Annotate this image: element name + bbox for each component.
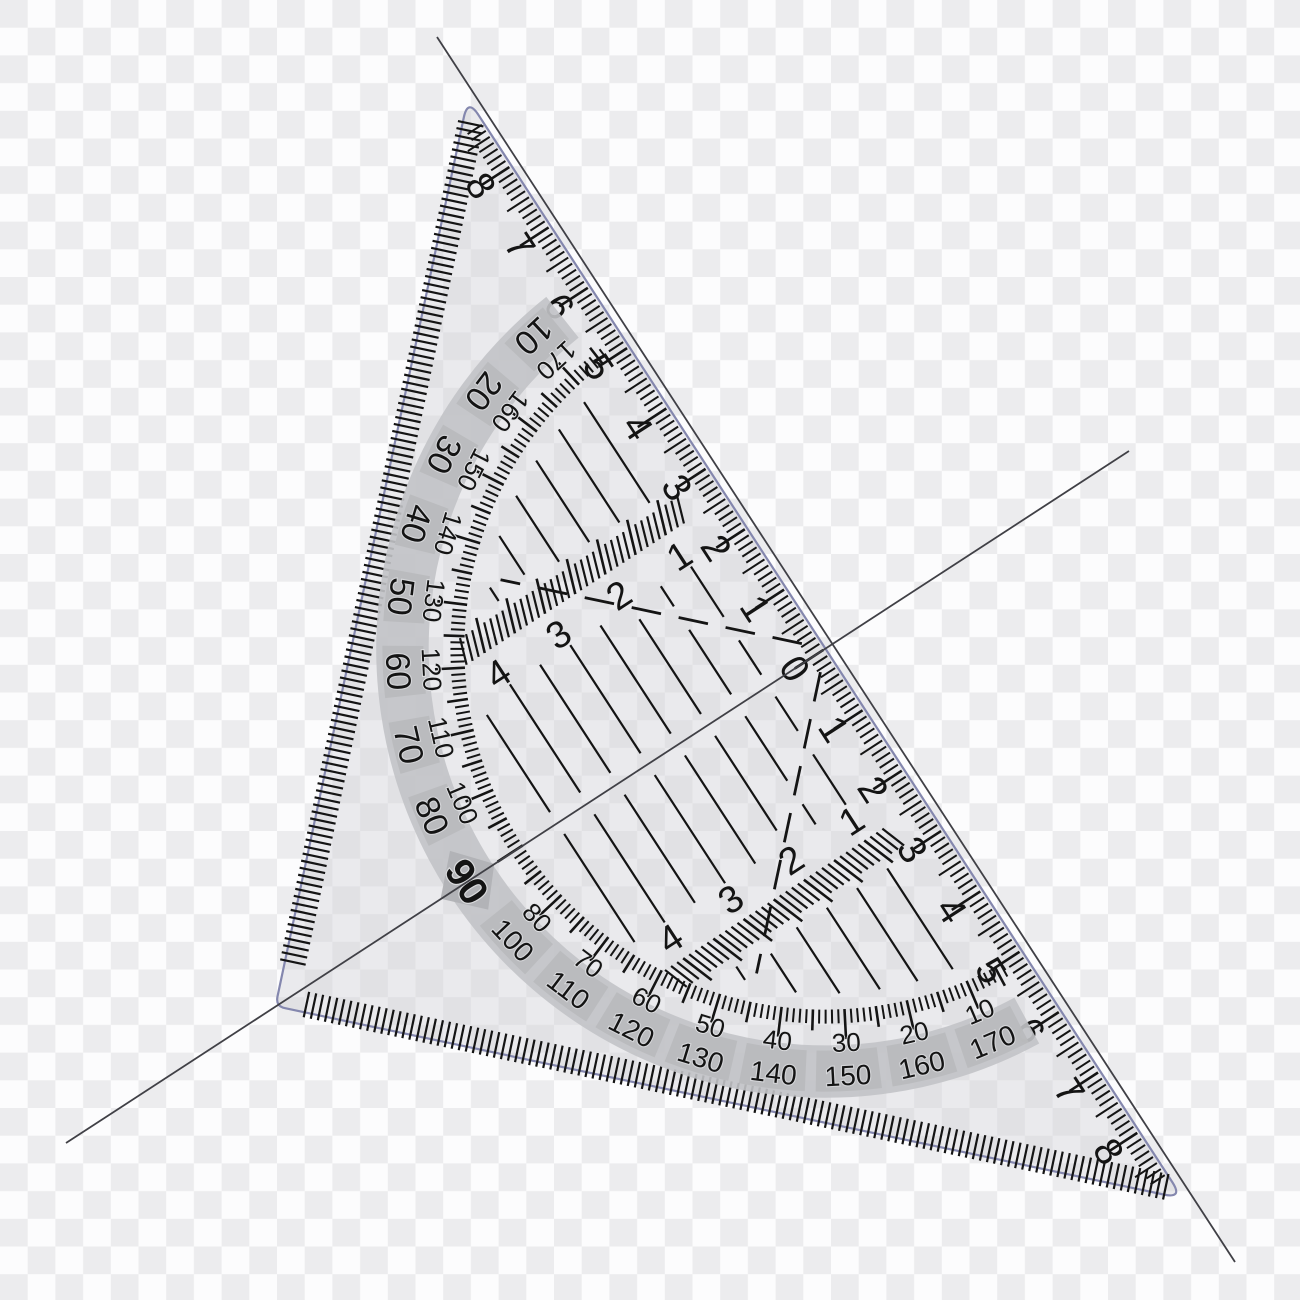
svg-text:30: 30 <box>831 1027 861 1058</box>
svg-text:40: 40 <box>761 1023 793 1056</box>
svg-text:50: 50 <box>379 576 421 618</box>
svg-text:120: 120 <box>415 647 447 692</box>
svg-text:130: 130 <box>416 577 451 624</box>
svg-text:60: 60 <box>378 651 418 691</box>
svg-text:150: 150 <box>824 1059 872 1092</box>
svg-text:140: 140 <box>748 1055 798 1091</box>
